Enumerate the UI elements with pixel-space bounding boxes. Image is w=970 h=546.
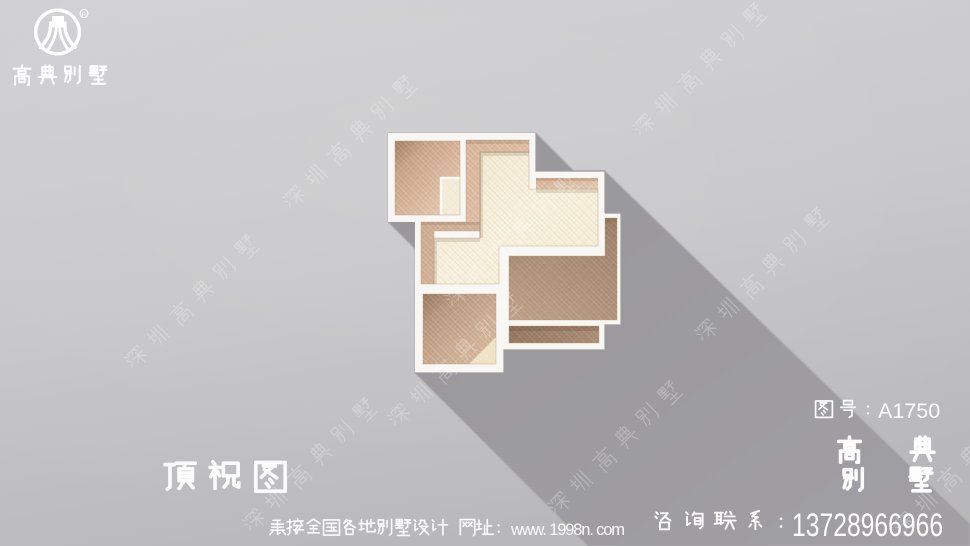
svg-text:A1750: A1750 — [878, 399, 940, 423]
svg-text:13728966966: 13728966966 — [792, 508, 943, 544]
svg-text:www. 1998n. com: www. 1998n. com — [510, 521, 625, 539]
svg-text:R: R — [82, 12, 86, 18]
